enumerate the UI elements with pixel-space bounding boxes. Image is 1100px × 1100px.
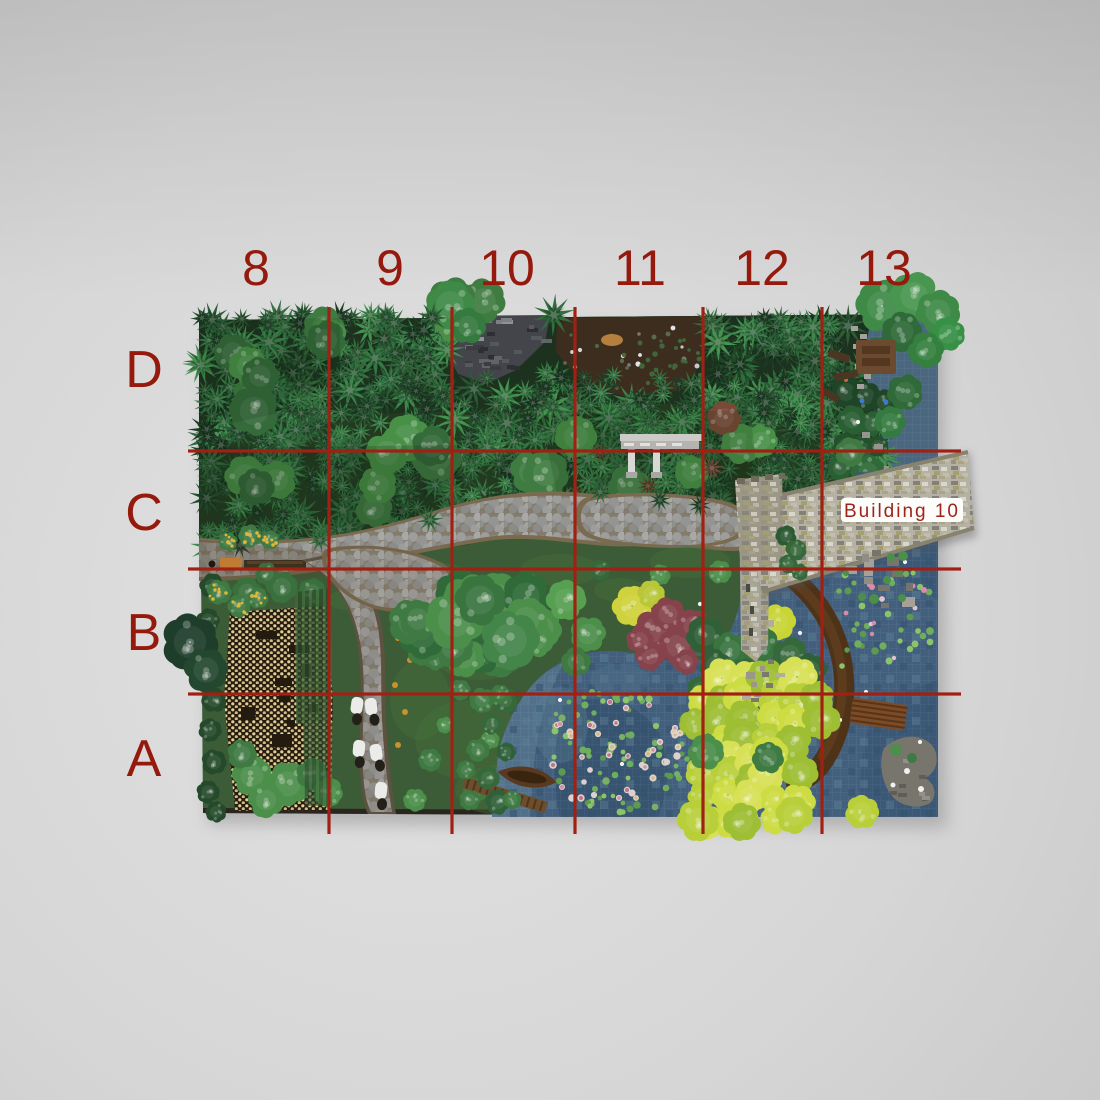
svg-text:C: C bbox=[125, 484, 163, 542]
svg-text:B: B bbox=[127, 604, 162, 662]
svg-text:11: 11 bbox=[614, 240, 666, 296]
svg-text:12: 12 bbox=[734, 240, 790, 296]
svg-text:10: 10 bbox=[479, 240, 535, 296]
svg-text:9: 9 bbox=[376, 240, 404, 296]
svg-text:Building 10: Building 10 bbox=[844, 501, 960, 522]
svg-text:8: 8 bbox=[242, 240, 270, 296]
svg-text:A: A bbox=[127, 730, 162, 788]
svg-text:D: D bbox=[125, 341, 163, 399]
svg-text:13: 13 bbox=[856, 240, 912, 296]
